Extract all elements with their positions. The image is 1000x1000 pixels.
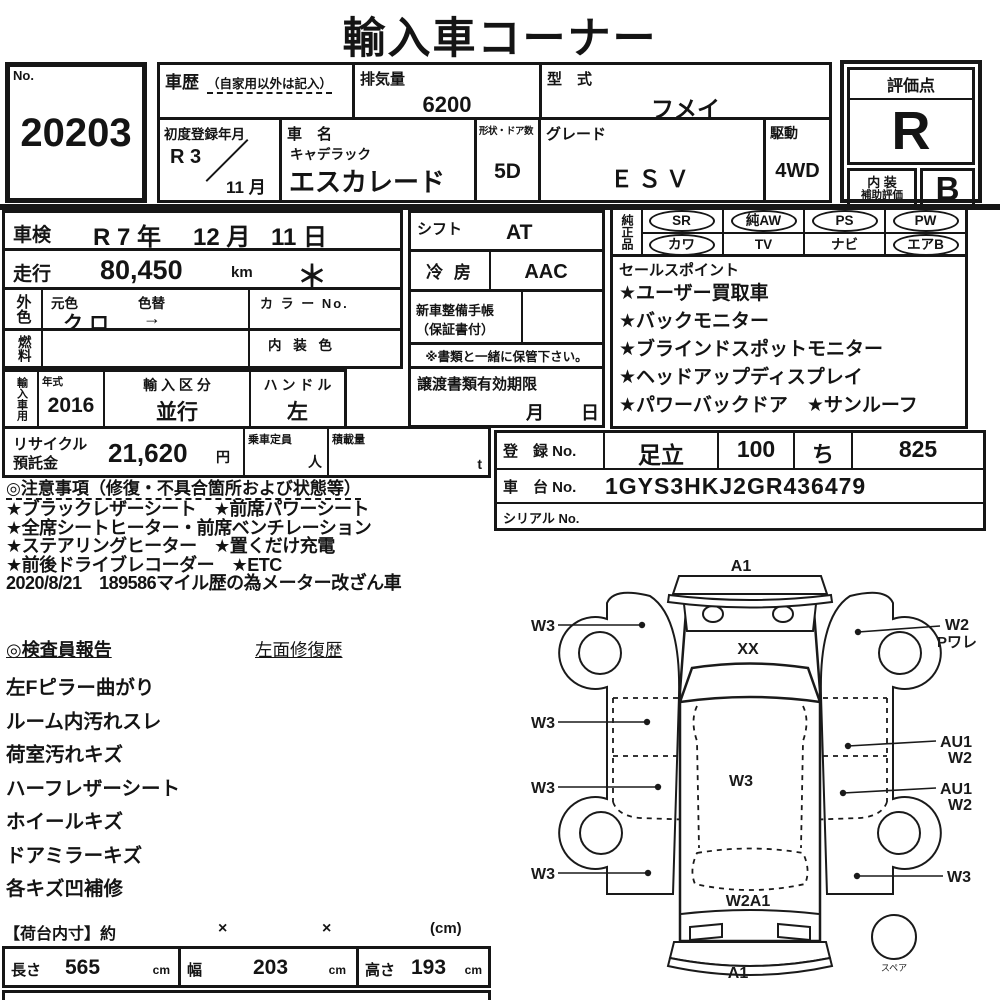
exterior-color-label: 外色 bbox=[16, 294, 31, 324]
first-registration-year: R 3 bbox=[170, 146, 201, 169]
cargo-height-unit: cm bbox=[465, 963, 482, 977]
recycle-label-1: リサイクル bbox=[13, 433, 87, 454]
equipment-power-windows: PW bbox=[884, 210, 965, 232]
lot-number-label: No. bbox=[13, 68, 34, 83]
history-cell: 車歴 （自家用以外は記入） bbox=[157, 62, 355, 120]
mileage-label: 走行 bbox=[13, 259, 51, 286]
history-label: 車歴 bbox=[165, 68, 199, 93]
first-registration-month: 11 月 bbox=[226, 173, 266, 198]
damage-label-right-3b: W2 bbox=[948, 797, 972, 814]
notes-header: ◎注意事項（修復・不具合箇所および状態等） bbox=[6, 479, 361, 500]
left-taillight bbox=[690, 924, 722, 940]
auction-sheet: 輸入車コーナー No. 20203 車歴 （自家用以外は記入） 排気量 6200… bbox=[0, 0, 1000, 1000]
history-note: （自家用以外は記入） bbox=[207, 73, 332, 94]
ac-box: 冷 房 AAC bbox=[408, 249, 605, 292]
grade-value: ＥＳＶ bbox=[541, 160, 763, 194]
inspector-line: 荷室汚れキズ bbox=[6, 739, 486, 773]
inspector-line: 左Fピラー曲がり bbox=[6, 672, 486, 706]
cargo-length-unit: cm bbox=[153, 963, 170, 977]
displacement-label: 排気量 bbox=[360, 68, 405, 89]
car-damage-diagram: A1 XX W3 W2A1 A1 W3 W3 W3 W3 W2 Pワレ AU1 … bbox=[500, 556, 1000, 1000]
drive-label: 駆動 bbox=[770, 123, 798, 143]
rear-left-wheel bbox=[580, 812, 622, 854]
equipment-airbag: エアB bbox=[884, 232, 965, 256]
sales-points-header: セールスポイント bbox=[619, 259, 959, 280]
inspector-line: ドアミラーキズ bbox=[6, 840, 486, 874]
damage-label-rear: A1 bbox=[728, 965, 749, 982]
model-code-label: 型 式 bbox=[547, 68, 592, 89]
spare-tire bbox=[872, 915, 916, 959]
front-left-wheel bbox=[579, 632, 621, 674]
sales-points-box: セールスポイント ★ユーザー買取車 ★バックモニター ★ブラインドスポットモニタ… bbox=[610, 254, 968, 429]
note-line: ★前後ドライブレコーダー ★ETC bbox=[6, 556, 492, 575]
capacity-label: 乗車定員 bbox=[248, 431, 292, 447]
factory-equipment-label: 純正品 bbox=[621, 214, 633, 250]
lot-number-value: 20203 bbox=[10, 111, 142, 156]
equipment-sunroof: SR bbox=[641, 210, 722, 232]
factory-equipment-box: 純正品 SR 純AW PS PW カワ TV ナビ エアB bbox=[610, 207, 968, 257]
lot-number-box: No. 20203 bbox=[5, 62, 147, 203]
sales-point: ★ヘッドアップディスプレイ bbox=[619, 364, 959, 392]
interior-color-label: 内 装 色 bbox=[268, 334, 336, 354]
keep-note-strip: ※書類と一緒に保管下さい。 bbox=[408, 342, 605, 369]
damage-label-right-2b: W2 bbox=[948, 750, 972, 767]
fuel-row: 燃料 内 装 色 bbox=[2, 328, 403, 369]
recycle-row: リサイクル 預託金 21,620 円 乗車定員 人 積載量 t bbox=[2, 426, 491, 478]
factory-equipment-grid: SR 純AW PS PW カワ TV ナビ エアB bbox=[641, 210, 965, 254]
first-registration-cell: 初度登録年月 R 3 ／ 11 月 bbox=[157, 117, 282, 203]
damage-label-hood: XX bbox=[737, 641, 759, 658]
cargo-times-2: × bbox=[322, 920, 331, 938]
model-code-cell: 型 式 フメイ bbox=[539, 62, 832, 120]
shaken-day: 11 日 bbox=[271, 217, 327, 252]
cargo-height-cell: 高さ 193 cm bbox=[356, 946, 491, 988]
drive-cell: 駆動 4WD bbox=[763, 117, 832, 203]
cargo-times-1: × bbox=[218, 920, 227, 938]
import-vertical-label: 輸入車用 bbox=[16, 377, 27, 421]
displacement-value: 6200 bbox=[355, 92, 539, 118]
right-taillight bbox=[778, 924, 810, 940]
equipment-leather: カワ bbox=[641, 232, 722, 256]
import-class-label: 輸 入 区 分 bbox=[105, 375, 249, 395]
repair-history-note: 左面修復歴 bbox=[255, 637, 343, 662]
cargo-unit-note: (cm) bbox=[430, 920, 462, 937]
damage-label-right-1a: W2 bbox=[945, 617, 969, 634]
sales-point: ★ブラインドスポットモニター bbox=[619, 336, 959, 364]
registration-class: 100 bbox=[717, 433, 793, 468]
cargo-header: 【荷台内寸】約 bbox=[4, 920, 116, 944]
doors-value: 5D bbox=[477, 160, 538, 184]
sales-point: ★ユーザー買取車 bbox=[619, 280, 959, 308]
cargo-length-cell: 長さ 565 cm bbox=[2, 946, 181, 988]
left-side-panel bbox=[559, 593, 679, 894]
windshield bbox=[680, 664, 820, 703]
equipment-power-steering: PS bbox=[803, 210, 884, 232]
transfer-day: 日 bbox=[581, 399, 599, 425]
shaken-month: 12 月 bbox=[193, 217, 250, 252]
cargo-width-unit: cm bbox=[329, 963, 346, 977]
notes-block: ◎注意事項（修復・不具合箇所および状態等） ★ブラックレザーシート ★前席パワー… bbox=[6, 479, 492, 593]
keep-note: ※書類と一緒に保管下さい。 bbox=[425, 346, 587, 365]
cargo-height-value: 193 bbox=[411, 956, 446, 980]
grade-cell: グレード ＥＳＶ bbox=[538, 117, 766, 203]
equipment-alloy-wheels: 純AW bbox=[722, 210, 803, 232]
front-right-wheel bbox=[879, 632, 921, 674]
doors-label: 形状・ドア数 bbox=[479, 123, 533, 137]
transfer-month: 月 bbox=[526, 399, 544, 425]
damage-label-right-2a: AU1 bbox=[940, 734, 972, 751]
front-bumper bbox=[673, 576, 827, 594]
car-maker: キャデラック bbox=[290, 143, 371, 163]
damage-label-left-2: W3 bbox=[531, 715, 555, 732]
page-title: 輸入車コーナー bbox=[0, 4, 1000, 66]
sales-point: ★パワーバックドア ★サンルーフ bbox=[619, 392, 959, 420]
maintenance-book-note: （保証書付） bbox=[416, 319, 494, 338]
note-line: 2020/8/21 189586マイル歴の為メーター改ざん車 bbox=[6, 574, 492, 593]
damage-label-right-1b: Pワレ bbox=[937, 634, 977, 651]
inspector-report-block: ◎検査員報告 左面修復歴 左Fピラー曲がり ルーム内汚れスレ 荷室汚れキズ ハー… bbox=[6, 636, 486, 907]
doors-cell: 形状・ドア数 5D bbox=[474, 117, 541, 203]
damage-label-right-3a: AU1 bbox=[940, 781, 972, 798]
exterior-color-row: 外色 元色 色替 クロ → カ ラ ー No. bbox=[2, 287, 403, 331]
transfer-docs-label: 譲渡書類有効期限 bbox=[417, 373, 537, 394]
spare-tire-label: スペア bbox=[881, 963, 907, 973]
handle-label: ハ ン ド ル bbox=[251, 375, 344, 395]
recycle-label-2: 預託金 bbox=[13, 452, 58, 473]
shaken-row: 車検 R 7 年 12 月 11 日 bbox=[2, 210, 403, 251]
rating-header: 評価点 bbox=[850, 70, 972, 100]
car-name-value: エスカレード bbox=[289, 162, 445, 199]
recycle-value: 21,620 bbox=[108, 438, 188, 469]
cargo-length-label: 長さ bbox=[11, 959, 41, 980]
inspector-report-header: ◎検査員報告 bbox=[6, 640, 112, 660]
chassis-no-label: 車 台 No. bbox=[503, 476, 576, 497]
mileage-unit: km bbox=[231, 264, 253, 281]
serial-no-label: シリアル No. bbox=[503, 508, 579, 527]
damage-label-left-4: W3 bbox=[531, 866, 555, 883]
shift-box: シフト AT bbox=[408, 210, 605, 252]
shaken-label: 車検 bbox=[13, 220, 51, 247]
registration-no-label: 登 録 No. bbox=[503, 440, 576, 461]
damage-label-left-3: W3 bbox=[531, 780, 555, 797]
car-name-label: 車 名 bbox=[287, 123, 332, 144]
import-class-value: 並行 bbox=[105, 396, 249, 426]
damage-label-front: A1 bbox=[731, 558, 752, 575]
recycle-unit: 円 bbox=[216, 447, 230, 467]
note-line: ★ブラックレザーシート ★前席パワーシート bbox=[6, 500, 492, 519]
car-name-cell: 車 名 キャデラック エスカレード bbox=[279, 117, 477, 203]
load-label: 積載量 bbox=[332, 431, 365, 447]
registration-kana: ち bbox=[793, 433, 851, 468]
equipment-navi: ナビ bbox=[803, 232, 884, 256]
damage-label-roof: W3 bbox=[729, 773, 753, 790]
year-label: 年式 bbox=[42, 374, 63, 389]
handle-value: 左 bbox=[251, 396, 344, 426]
capacity-unit: 人 bbox=[308, 452, 322, 472]
color-change-value: → bbox=[143, 308, 161, 329]
maintenance-book-box: 新車整備手帳 （保証書付） bbox=[408, 289, 605, 345]
transfer-docs-box: 譲渡書類有効期限 月 日 bbox=[408, 366, 605, 428]
inspector-line: ホイールキズ bbox=[6, 806, 486, 840]
mileage-row: 走行 80,450 km ＊ bbox=[2, 248, 403, 290]
chassis-no-value: 1GYS3HKJ2GR436479 bbox=[605, 473, 866, 500]
inspector-line: 各キズ凹補修 bbox=[6, 873, 486, 907]
damage-label-rear-window: W2A1 bbox=[726, 893, 771, 910]
cargo-extra-row bbox=[2, 990, 491, 1000]
shift-value: AT bbox=[506, 221, 532, 245]
cargo-height-label: 高さ bbox=[365, 959, 395, 980]
damage-label-right-4: W3 bbox=[947, 869, 971, 886]
cargo-width-value: 203 bbox=[253, 956, 288, 980]
equipment-tv: TV bbox=[722, 232, 803, 256]
sales-point: ★バックモニター bbox=[619, 308, 959, 336]
note-line: ★全席シートヒーター・前席ベンチレーション bbox=[6, 519, 492, 538]
note-line: ★ステアリングヒーター ★置くだけ充電 bbox=[6, 537, 492, 556]
damage-label-left-1: W3 bbox=[531, 618, 555, 635]
import-block: 輸入車用 年式 2016 輸 入 区 分 並行 ハ ン ド ル 左 bbox=[2, 369, 347, 429]
drive-value: 4WD bbox=[766, 160, 829, 183]
registration-number: 825 bbox=[851, 433, 983, 468]
inspector-line: ルーム内汚れスレ bbox=[6, 706, 486, 740]
rating-box: 評価点 R 内 装 補助評価 B bbox=[840, 60, 982, 203]
rating-score: R bbox=[850, 100, 972, 162]
cargo-length-value: 565 bbox=[65, 956, 100, 980]
year-value: 2016 bbox=[39, 394, 103, 418]
front-bumper-lip bbox=[668, 595, 832, 608]
maintenance-book-label: 新車整備手帳 bbox=[416, 300, 494, 319]
ac-label: 冷 房 bbox=[426, 258, 474, 283]
shift-label: シフト bbox=[417, 218, 462, 239]
grade-label: グレード bbox=[546, 123, 606, 144]
registration-block: 登 録 No. 足立 100 ち 825 車 台 No. 1GYS3HKJ2GR… bbox=[494, 430, 986, 531]
fuel-label: 燃料 bbox=[16, 335, 30, 362]
cargo-width-label: 幅 bbox=[187, 959, 202, 980]
inspector-line: ハーフレザーシート bbox=[6, 773, 486, 807]
color-no-label: カ ラ ー No. bbox=[260, 293, 349, 312]
ac-value: AAC bbox=[491, 261, 601, 284]
rear-right-wheel bbox=[878, 812, 920, 854]
mileage-value: 80,450 bbox=[100, 255, 183, 286]
rating-score-box: 評価点 R bbox=[847, 67, 975, 165]
shaken-year: R 7 年 bbox=[93, 217, 161, 252]
cargo-header-row: 【荷台内寸】約 × × (cm) bbox=[2, 920, 494, 944]
load-unit: t bbox=[477, 456, 482, 472]
registration-area: 足立 bbox=[603, 433, 717, 468]
displacement-cell: 排気量 6200 bbox=[352, 62, 542, 120]
cargo-width-cell: 幅 203 cm bbox=[178, 946, 359, 988]
